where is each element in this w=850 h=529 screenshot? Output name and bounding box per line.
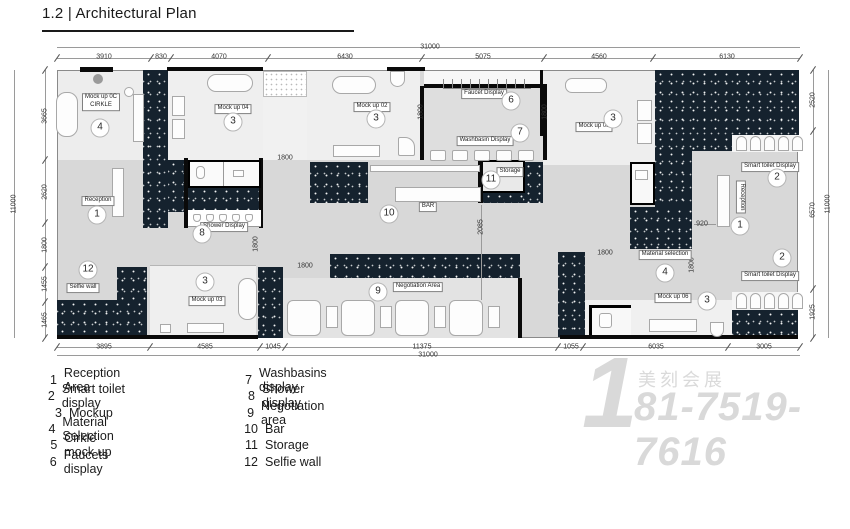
area-marker: 3 [196, 273, 215, 292]
fixture-toilet-stall [792, 293, 803, 309]
fixture-sink [172, 96, 185, 116]
area-label: Washbasin Display [457, 136, 514, 146]
dimension-label: 6570 [810, 202, 817, 218]
area-label: Mock up 06 [654, 293, 691, 303]
fixture-shower-head [232, 214, 240, 222]
dimension-label: 2520 [810, 92, 817, 108]
dimension-label: 6430 [337, 54, 353, 61]
dimension-label: 1800 [42, 237, 49, 253]
wall [80, 67, 113, 72]
area-marker: 12 [79, 261, 98, 280]
area-marker: 9 [369, 283, 388, 302]
dark-wall-hatch [630, 207, 692, 249]
area-label: Smart toilet Display [741, 271, 799, 281]
fixture-sofa [449, 300, 483, 336]
fixture-counter [187, 323, 224, 333]
fixture-toilet-stall [764, 136, 775, 151]
dark-wall-hatch [258, 267, 283, 338]
fixture-toilet [196, 166, 205, 179]
fixture-side-table [380, 306, 392, 328]
dark-wall-hatch [732, 310, 798, 337]
area-label: Mock up 0C CIRKLE [82, 93, 120, 111]
fixture-shower-head [206, 214, 214, 222]
area-marker: 2 [768, 169, 787, 188]
legend-item-number: 9 [240, 406, 254, 420]
dimension-label: 6130 [719, 54, 735, 61]
area-label: Storage [496, 167, 523, 177]
legend-col-2: 7Washbasins display8Shower display9Negot… [240, 372, 333, 470]
wc-divider [223, 162, 224, 186]
dimension-label: 2085 [478, 219, 485, 235]
dimension-label: 4560 [591, 54, 607, 61]
area-marker: 8 [193, 225, 212, 244]
area-marker: 4 [656, 264, 675, 283]
dark-wall-hatch [117, 267, 147, 300]
dimension-label: 1055 [563, 344, 579, 351]
dimension-label: 1045 [265, 344, 281, 351]
dimension-label: 6035 [648, 344, 664, 351]
fixture-washbasin [496, 150, 512, 161]
fixture-double-sink [333, 145, 380, 157]
dimension-label: 1800 [597, 250, 613, 257]
watermark-digit: 1 [582, 352, 638, 434]
legend-item-number: 2 [44, 389, 55, 403]
area-marker: 1 [731, 217, 750, 236]
fixture-bathtub [238, 278, 257, 320]
fixture-bathtub [207, 74, 253, 92]
legend-item-label: Selfie wall [265, 455, 321, 469]
dimension-label: 11000 [825, 195, 832, 214]
dimension-label: 4585 [197, 344, 213, 351]
dimension-label: 5075 [475, 54, 491, 61]
legend-item-number: 10 [240, 422, 258, 436]
door [390, 71, 405, 87]
fixture-double-sink [649, 319, 697, 332]
dimension-label: 2620 [42, 184, 49, 200]
bar-back-counter [370, 165, 480, 172]
architectural-plan-page: 1.2 | Architectural Plan [0, 0, 850, 529]
fixture-sink [172, 119, 185, 139]
legend-item-number: 4 [44, 422, 55, 436]
area-marker: 3 [224, 113, 243, 132]
dimension-label: 1800 [542, 104, 549, 120]
legend-item-label: Storage [265, 438, 309, 452]
dimension-label: 1800 [277, 155, 293, 162]
dark-wall-hatch [143, 70, 168, 228]
dark-wall-hatch [57, 300, 147, 338]
fixture-side-table [434, 306, 446, 328]
legend-item-number: 12 [240, 455, 258, 469]
watermark: 1 美刻会展 81-7519-7616 [582, 352, 850, 467]
area-label: Reception [736, 180, 746, 213]
wall [167, 67, 263, 71]
area-marker: 7 [511, 124, 530, 143]
legend-item-number: 1 [44, 373, 57, 387]
dimension-tick [810, 334, 816, 342]
fixture-toilet-stall [778, 293, 789, 309]
dimension-label: 11375 [413, 344, 432, 351]
area-marker: 11 [482, 171, 501, 190]
legend-item-number: 5 [44, 438, 57, 452]
dark-wall-hatch [655, 70, 799, 135]
wall [518, 278, 522, 338]
dimension-tick [797, 343, 803, 351]
watermark-phone: 81-7519-7616 [634, 385, 850, 475]
fixture-sink [637, 123, 652, 144]
legend-item-number: 7 [240, 373, 252, 387]
dimension-label: 31000 [418, 352, 437, 359]
area-label: Negotiation Area [393, 282, 443, 292]
dimension-label: 1800 [297, 263, 313, 270]
fixture-side-table [326, 306, 338, 328]
entry-tile-area [263, 71, 307, 97]
area-label: BAR [419, 202, 437, 212]
dark-wall-hatch [558, 252, 585, 337]
fixture-side-table [488, 306, 500, 328]
dark-wall-hatch [655, 135, 732, 151]
dimension-label: 11000 [11, 195, 18, 214]
fixture-washbasin [518, 150, 534, 161]
area-label: Material selection [639, 250, 692, 260]
fixture-sink [637, 100, 652, 121]
area-marker: 4 [91, 119, 110, 138]
dimension-label: 1800 [253, 236, 260, 252]
fixture-toilet [599, 313, 612, 328]
fixture-bathtub [56, 92, 78, 137]
fixture-shower-head [245, 214, 253, 222]
legend-item: 6Faucets display [44, 453, 125, 469]
fixture-toilet-stall [750, 293, 761, 309]
faucet-display-row [443, 79, 531, 89]
area-marker: 10 [380, 205, 399, 224]
fixture-washbasin [452, 150, 468, 161]
dimension-label: 3895 [96, 344, 112, 351]
legend-item: 9Negotiation area [240, 405, 333, 421]
reception-desk [717, 175, 730, 227]
dimension-label: 1925 [810, 304, 817, 320]
area-marker: 2 [773, 249, 792, 268]
fixture-shower-head [193, 214, 201, 222]
area-label: Reception [81, 196, 114, 206]
fixture-sink [233, 170, 244, 177]
wall [543, 84, 547, 160]
fixture-toilet-stall [736, 136, 747, 151]
dark-wall-hatch [188, 187, 263, 211]
legend-item-number: 6 [44, 455, 57, 469]
dimension-label: 1455 [42, 276, 49, 292]
door [710, 322, 724, 337]
dark-wall-hatch [310, 162, 368, 203]
dimension-label: 1465 [42, 312, 49, 328]
dimension-label: 31000 [420, 44, 439, 51]
dark-wall-hatch [330, 254, 520, 278]
fixture-toilet-stall [736, 293, 747, 309]
fixture-cabinet [133, 94, 144, 142]
area-marker: 3 [698, 292, 717, 311]
dimension-label: 3665 [42, 108, 49, 124]
fixture-round-sink [124, 87, 134, 97]
fixture-sofa [395, 300, 429, 336]
fixture-washbasin [474, 150, 490, 161]
reception-desk [112, 168, 124, 217]
fixture-bathtub [565, 78, 607, 93]
legend-item-number: 11 [240, 438, 258, 452]
fixture-toilet-stall [792, 136, 803, 151]
fixture-sofa [287, 300, 321, 336]
dimension-label: 920 [696, 221, 708, 228]
wc-room-right [630, 162, 655, 205]
legend-item-label: Bar [265, 422, 284, 436]
dimension-label: 3910 [96, 54, 112, 61]
fixture-toilet-stall [750, 136, 761, 151]
area-marker: 3 [604, 110, 623, 129]
bar-counter [395, 187, 481, 202]
legend-item-number: 3 [44, 406, 62, 420]
fixture-bathtub [332, 76, 376, 94]
legend-col-1: 1Reception Area2Smart toilet display3Moc… [44, 372, 125, 470]
wall [57, 335, 258, 339]
wall [420, 86, 424, 160]
area-marker: 3 [367, 110, 386, 129]
dimension-tick [797, 54, 803, 62]
fixture-sink [160, 324, 171, 333]
legend-item: 11Storage [240, 437, 333, 453]
legend-item: 12Selfie wall [240, 453, 333, 469]
fixture-stool [93, 74, 103, 84]
fixture-toilet-stall [764, 293, 775, 309]
fixture-sofa [341, 300, 375, 336]
fixture-shower-tray [398, 137, 415, 156]
area-label: Mock up 03 [188, 296, 225, 306]
dimension-label: 4070 [211, 54, 227, 61]
legend-item-label: Faucets display [64, 448, 126, 476]
fixture-toilet-stall [778, 136, 789, 151]
passage [263, 97, 307, 160]
fixture-shower-head [219, 214, 227, 222]
dimension-tick [42, 334, 48, 342]
fixture-sink [635, 170, 648, 180]
dimension-label: 830 [155, 54, 167, 61]
area-label: Faucet Display [461, 89, 507, 99]
area-marker: 1 [88, 206, 107, 225]
area-marker: 6 [502, 92, 521, 111]
dimension-label: 1800 [418, 104, 425, 120]
dark-wall-hatch [523, 162, 543, 203]
area-label: Selfie wall [66, 283, 99, 293]
legend-item-number: 8 [240, 389, 255, 403]
legend-item: 2Smart toilet display [44, 388, 125, 404]
dimension-label: 3005 [756, 344, 772, 351]
dark-wall-hatch [483, 192, 525, 203]
fixture-washbasin [430, 150, 446, 161]
